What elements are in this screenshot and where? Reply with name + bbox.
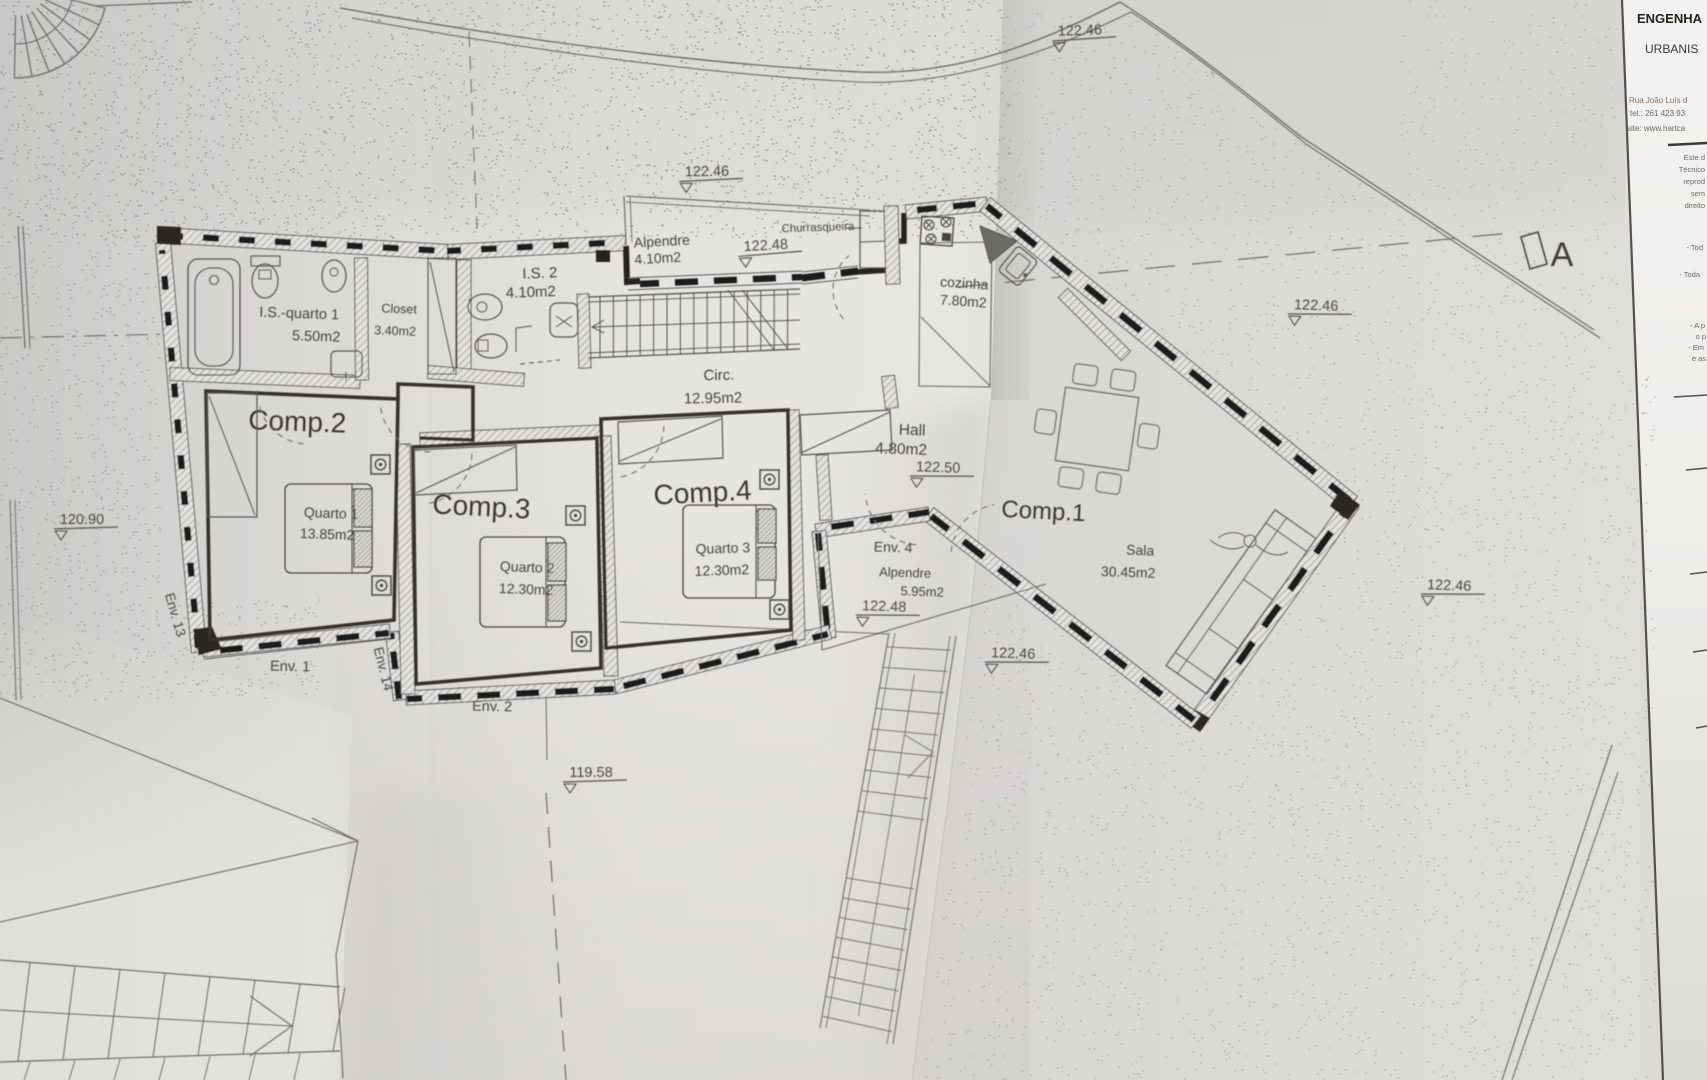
svg-text:Alpendre: Alpendre (633, 232, 690, 251)
svg-text:Sala: Sala (1126, 542, 1155, 559)
svg-text:Rua João Luís d: Rua João Luís d (1629, 96, 1687, 105)
svg-text:122.46: 122.46 (1057, 22, 1102, 40)
svg-text:URBANIS: URBANIS (1645, 42, 1698, 56)
svg-text:e as: e as (1692, 354, 1706, 363)
svg-text:Closet: Closet (381, 301, 417, 316)
svg-text:site: www.hartca: site: www.hartca (1627, 124, 1686, 133)
svg-text:Churrasqueira: Churrasqueira (781, 221, 855, 236)
svg-text:12.95m2: 12.95m2 (684, 389, 743, 407)
svg-text:A: A (1551, 236, 1574, 274)
svg-text:Env. 4: Env. 4 (874, 538, 913, 555)
svg-text:direito: direito (1685, 201, 1705, 210)
svg-text:Técnico: Técnico (1679, 165, 1705, 174)
svg-text:Este d: Este d (1684, 153, 1705, 162)
svg-text:5.50m2: 5.50m2 (292, 328, 341, 346)
svg-text:tel.: 261 423 93: tel.: 261 423 93 (1630, 109, 1686, 118)
svg-text:ENGENHA: ENGENHA (1637, 11, 1703, 26)
svg-text:o p: o p (1696, 332, 1706, 341)
svg-text:Comp.1: Comp.1 (1001, 496, 1086, 527)
svg-text:Alpendre: Alpendre (879, 564, 932, 581)
svg-text:122.46: 122.46 (1294, 297, 1339, 315)
svg-text:Quarto 3: Quarto 3 (695, 539, 750, 557)
svg-text:- Toda: - Toda (1679, 270, 1701, 279)
svg-text:7.80m2: 7.80m2 (939, 291, 987, 310)
svg-text:Quarto 2: Quarto 2 (500, 558, 555, 576)
svg-text:12.30m2: 12.30m2 (499, 580, 554, 598)
svg-text:I.S. 2: I.S. 2 (522, 264, 558, 282)
svg-text:I.S.-quarto 1: I.S.-quarto 1 (259, 305, 339, 324)
svg-text:119.58: 119.58 (569, 765, 612, 781)
svg-text:Env. 2: Env. 2 (472, 699, 512, 716)
svg-text:12.30m2: 12.30m2 (694, 561, 749, 579)
svg-text:5.95m2: 5.95m2 (900, 583, 944, 600)
svg-text:13.85m2: 13.85m2 (300, 525, 355, 543)
svg-text:122.46: 122.46 (991, 645, 1036, 663)
svg-text:4.10m2: 4.10m2 (506, 283, 557, 302)
svg-text:Circ.: Circ. (703, 367, 734, 385)
svg-text:- Em: - Em (1688, 343, 1704, 352)
svg-text:Hall: Hall (899, 422, 926, 440)
svg-text:- A p: - A p (1690, 321, 1705, 330)
svg-text:30.45m2: 30.45m2 (1101, 563, 1156, 581)
svg-text:120.90: 120.90 (60, 512, 104, 528)
svg-text:- Tod: - Tod (1686, 243, 1703, 252)
svg-text:Env. 1: Env. 1 (270, 659, 310, 676)
svg-text:Quarto 1: Quarto 1 (304, 504, 359, 522)
svg-text:cozinha: cozinha (940, 273, 989, 292)
svg-text:4.80m2: 4.80m2 (875, 440, 927, 459)
svg-text:sem: sem (1691, 189, 1705, 198)
svg-text:122.48: 122.48 (862, 598, 907, 616)
svg-text:122.46: 122.46 (1427, 577, 1472, 595)
svg-text:reprod: reprod (1683, 177, 1705, 186)
svg-text:122.50: 122.50 (916, 459, 961, 477)
svg-text:3.40m2: 3.40m2 (374, 323, 416, 338)
svg-text:122.46: 122.46 (685, 164, 730, 181)
svg-text:Comp.2: Comp.2 (248, 404, 347, 438)
svg-text:4.10m2: 4.10m2 (634, 249, 682, 267)
